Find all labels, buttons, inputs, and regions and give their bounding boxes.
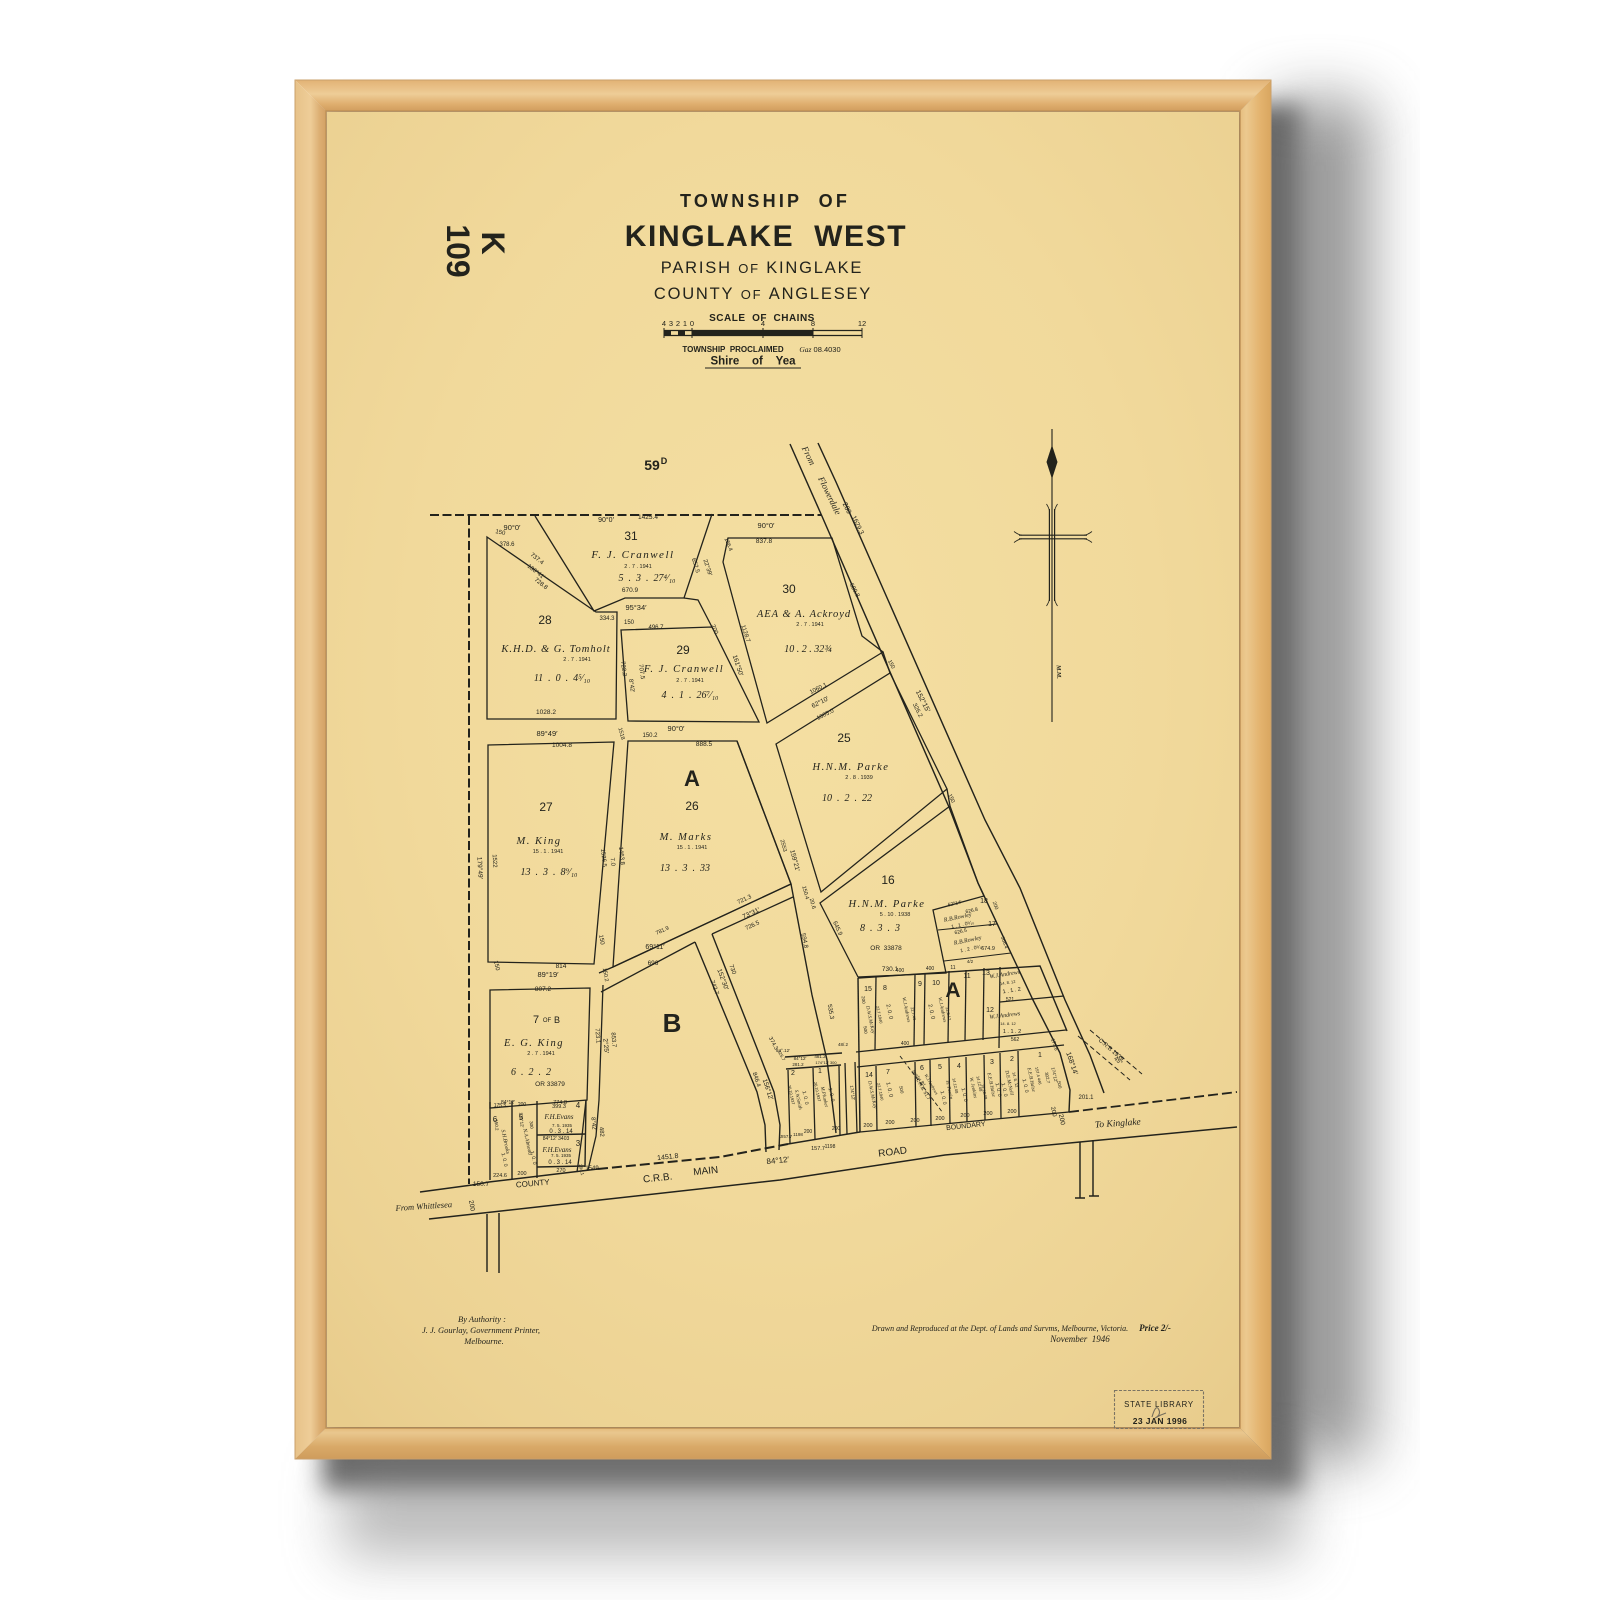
svg-text:9: 9 [918,981,922,988]
svg-text:3: 3 [576,1139,581,1148]
svg-text:562: 562 [1011,1037,1020,1043]
svg-text:1549: 1549 [585,1166,599,1172]
svg-text:2 . 7 . 1941: 2 . 7 . 1941 [624,564,652,570]
svg-text:25: 25 [837,731,851,745]
svg-text:281.2: 281.2 [792,1062,804,1067]
svg-text:84°12′: 84°12′ [794,1056,807,1061]
svg-text:B: B [554,1015,560,1025]
svg-text:E. G. King: E. G. King [503,1038,564,1049]
svg-text:11 . 0 . 4⁵⁄₁₀: 11 . 0 . 4⁵⁄₁₀ [534,673,591,684]
svg-text:7: 7 [533,1014,539,1026]
svg-text:8°42′: 8°42′ [589,1117,596,1132]
svg-text:270: 270 [556,1168,565,1174]
svg-text:334.3: 334.3 [599,616,615,622]
svg-text:Shire of Yea: Shire of Yea [710,356,796,368]
svg-text:1028.2: 1028.2 [536,709,556,716]
svg-text:K: K [475,231,511,254]
svg-text:J. J. Gourlay, Government Prin: J. J. Gourlay, Government Printer, [422,1325,540,1335]
svg-text:696: 696 [648,960,659,967]
svg-text:84°12′: 84°12′ [501,1100,515,1106]
svg-text:200: 200 [1007,1109,1016,1115]
svg-text:4/2: 4/2 [967,959,974,964]
svg-text:15: 15 [864,986,872,993]
svg-text:7.0: 7.0 [609,857,616,867]
svg-text:10: 10 [932,980,940,987]
svg-text:M. King: M. King [516,836,562,847]
svg-text:13 . 3 . 33: 13 . 3 . 33 [660,863,710,874]
svg-text:7: 7 [886,1069,890,1076]
svg-text:14. 8. 12: 14. 8. 12 [1000,1021,1016,1026]
svg-text:14: 14 [865,1072,873,1079]
svg-text:30: 30 [782,582,796,596]
svg-text:5: 5 [938,1064,942,1071]
svg-text:K.H.D. & G. Tomholt: K.H.D. & G. Tomholt [500,644,610,655]
svg-text:2°25′: 2°25′ [601,1038,610,1054]
svg-text:H.N.M. Parke: H.N.M. Parke [848,899,926,910]
svg-text:1004.8: 1004.8 [552,742,572,749]
svg-text:6 . 2 . 2: 6 . 2 . 2 [511,1067,551,1078]
svg-text:D: D [661,456,668,466]
svg-text:150: 150 [624,620,635,626]
svg-text:AEA & A. Ackroyd: AEA & A. Ackroyd [756,609,851,620]
svg-text:15 . 1 . 1941: 15 . 1 . 1941 [533,849,564,855]
svg-text:200: 200 [861,996,867,1004]
svg-text:16: 16 [881,873,895,887]
svg-text:1: 1 [683,319,687,328]
svg-text:H.N.M. Parke: H.N.M. Parke [812,762,890,773]
svg-text:7. 5. 1935: 7. 5. 1935 [552,1123,573,1128]
svg-text:F. J. Cranwell: F. J. Cranwell [643,664,724,675]
svg-text:400: 400 [901,1041,910,1047]
svg-text:Drawn and Reproduced at the De: Drawn and Reproduced at the Dept. of Lan… [871,1324,1128,1333]
svg-text:10 . 2 . 22: 10 . 2 . 22 [822,793,872,804]
svg-text:521: 521 [1006,997,1015,1003]
svg-text:200: 200 [863,1123,872,1129]
svg-text:4: 4 [761,319,765,328]
svg-text:TOWNSHIP OF: TOWNSHIP OF [680,191,850,211]
svg-text:M. Marks: M. Marks [659,832,713,843]
svg-text:201.1: 201.1 [1078,1095,1094,1101]
svg-text:A: A [945,979,960,1002]
svg-text:1: 1 [1038,1052,1042,1059]
svg-text:2: 2 [1010,1056,1014,1063]
svg-text:300: 300 [529,1121,535,1129]
svg-text:90°0′: 90°0′ [598,516,614,524]
svg-text:1198: 1198 [825,1144,836,1150]
svg-text:11: 11 [963,973,970,980]
svg-text:JI57.7: JI57.7 [780,1134,793,1139]
svg-text:0 . 3 . 14: 0 . 3 . 14 [549,1129,573,1135]
svg-text:200: 200 [885,1120,894,1126]
svg-text:174°12′ 300: 174°12′ 300 [815,1060,837,1065]
svg-text:69°11′: 69°11′ [645,943,665,951]
svg-text:Price 2/-: Price 2/- [1139,1323,1171,1333]
svg-text:157.7: 157.7 [811,1146,825,1152]
svg-text:15 . 1 . 1941: 15 . 1 . 1941 [677,845,708,851]
svg-text:2 . 7 . 1941: 2 . 7 . 1941 [796,622,824,628]
svg-text:OR 33879: OR 33879 [535,1081,565,1088]
svg-text:150.2: 150.2 [494,1119,500,1131]
svg-text:17: 17 [988,921,996,928]
svg-text:0 . 3 . 14: 0 . 3 . 14 [548,1160,572,1166]
svg-text:4: 4 [576,1101,581,1110]
svg-text:200: 200 [517,1171,526,1177]
svg-text:8: 8 [883,985,887,992]
svg-text:5 . 10 . 1938: 5 . 10 . 1938 [880,912,911,918]
svg-text:670.9: 670.9 [622,587,639,594]
svg-text:27: 27 [539,800,553,814]
svg-text:November 1946: November 1946 [1049,1334,1110,1344]
svg-text:7. 5. 1935: 7. 5. 1935 [551,1153,572,1158]
svg-text:90°0′: 90°0′ [758,521,776,530]
svg-text:90°0′: 90°0′ [668,724,686,733]
svg-text:2: 2 [791,1070,795,1077]
svg-text:M.M.: M.M. [1055,664,1062,679]
svg-text:PARISH OF KINGLAKE: PARISH OF KINGLAKE [661,259,863,277]
svg-text:1 . 1 . 2: 1 . 1 . 2 [1003,1029,1021,1035]
svg-text:29: 29 [676,643,690,657]
svg-text:674.9: 674.9 [981,946,995,952]
svg-text:11: 11 [950,965,955,971]
svg-text:4: 4 [662,319,666,328]
svg-text:Gaz 08.4030: Gaz 08.4030 [799,345,840,354]
svg-text:399.3: 399.3 [552,1104,566,1110]
svg-text:COUNTY OF ANGLESEY: COUNTY OF ANGLESEY [654,285,872,303]
svg-text:13 . 3 . 8⁹⁄₁₀: 13 . 3 . 8⁹⁄₁₀ [520,867,578,878]
svg-text:TOWNSHIP PROCLAIMED: TOWNSHIP PROCLAIMED [682,345,783,354]
svg-text:496.7: 496.7 [648,625,664,631]
svg-text:378.6: 378.6 [499,542,515,548]
svg-text:200: 200 [804,1129,813,1135]
svg-text:6: 6 [920,1065,924,1072]
svg-text:23 JAN 1996: 23 JAN 1996 [1133,1416,1188,1426]
svg-text:84°12′ 3403: 84°12′ 3403 [543,1136,570,1142]
svg-text:31: 31 [624,529,638,543]
svg-text:KINGLAKE WEST: KINGLAKE WEST [625,220,907,253]
svg-text:4: 4 [957,1063,961,1070]
svg-text:2 . 8 . 1939: 2 . 8 . 1939 [845,775,873,781]
svg-text:3: 3 [990,1059,994,1066]
svg-text:95°34′: 95°34′ [625,603,647,612]
svg-text:807.2: 807.2 [535,986,552,993]
svg-text:814: 814 [556,963,567,970]
svg-text:28: 28 [538,613,552,627]
svg-text:OF: OF [543,1018,552,1024]
svg-text:224.6: 224.6 [493,1173,507,1179]
svg-text:150.2: 150.2 [642,733,658,739]
svg-text:1425.4: 1425.4 [638,514,658,521]
svg-text:Melbourne.: Melbourne. [463,1336,503,1346]
svg-text:200: 200 [983,1111,992,1117]
svg-text:12: 12 [986,1007,994,1014]
svg-text:2: 2 [676,319,680,328]
svg-text:89°49′: 89°49′ [536,729,558,738]
svg-text:5 . 3 . 27⁴⁄₁₀: 5 . 3 . 27⁴⁄₁₀ [618,573,676,584]
svg-text:200: 200 [935,1116,944,1122]
svg-text:400: 400 [926,966,935,972]
svg-text:1198: 1198 [793,1132,803,1137]
svg-text:200: 200 [910,1118,919,1124]
svg-text:12: 12 [858,319,866,328]
svg-text:1: 1 [818,1068,822,1075]
svg-text:200: 200 [960,1113,969,1119]
svg-text:48/.2: 48/.2 [838,1042,849,1047]
svg-text:A: A [684,766,700,791]
svg-text:1522: 1522 [491,854,498,868]
svg-text:2 . 7 . 1941: 2 . 7 . 1941 [527,1051,555,1057]
svg-text:By Authority :: By Authority : [458,1314,506,1324]
svg-text:150.7: 150.7 [473,1181,490,1188]
svg-text:179°49′: 179°49′ [475,857,484,880]
svg-text:26: 26 [685,799,699,813]
svg-text:200: 200 [832,1126,841,1132]
svg-text:F.H.Evans: F.H.Evans [543,1113,573,1121]
svg-text:730.1: 730.1 [882,966,899,973]
svg-text:B: B [663,1008,682,1038]
svg-text:3: 3 [669,319,673,328]
svg-text:18: 18 [980,898,988,905]
svg-text:OR 33878: OR 33878 [870,945,902,952]
svg-text:2 . 7 . 1941: 2 . 7 . 1941 [676,678,704,684]
svg-text:500: 500 [863,1026,869,1034]
svg-text:482: 482 [598,1127,605,1138]
svg-text:89°19′: 89°19′ [537,970,559,979]
svg-text:59: 59 [644,457,660,473]
svg-text:8 . 3 . 3: 8 . 3 . 3 [860,923,900,934]
svg-text:200: 200 [518,1102,527,1108]
svg-text:0: 0 [690,319,694,328]
svg-text:F. J. Cranwell: F. J. Cranwell [590,549,674,561]
svg-text:888.5: 888.5 [696,741,713,748]
svg-text:10 . 2 . 32¾: 10 . 2 . 32¾ [784,644,832,655]
svg-text:8: 8 [811,319,815,328]
svg-text:481.2: 481.2 [814,1054,826,1059]
svg-text:4 . 1 . 26⁷⁄₁₀: 4 . 1 . 26⁷⁄₁₀ [661,690,719,701]
svg-text:STATE LIBRARY: STATE LIBRARY [1124,1400,1194,1409]
svg-text:2 . 7 . 1941: 2 . 7 . 1941 [563,657,591,663]
svg-text:90°0′: 90°0′ [504,523,522,532]
svg-text:837.8: 837.8 [756,538,773,545]
svg-text:109: 109 [440,224,476,277]
